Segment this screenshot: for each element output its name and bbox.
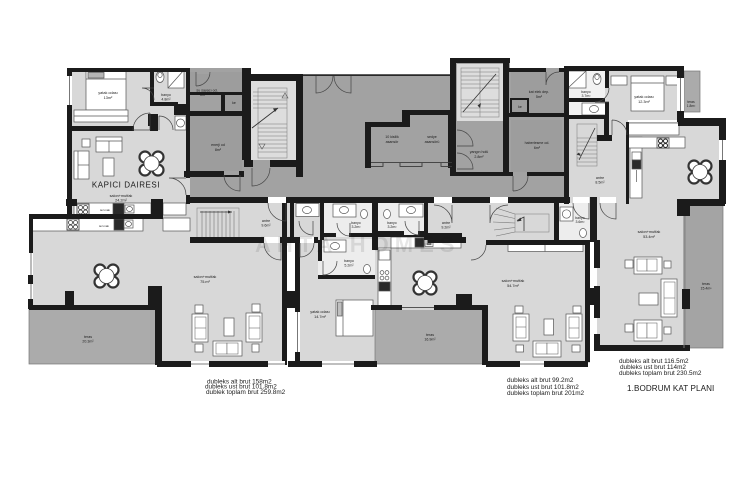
svg-text:kat elek dep.: kat elek dep.: [529, 90, 549, 94]
svg-text:tez.mak: tez.mak: [99, 224, 109, 228]
svg-text:antre: antre: [596, 176, 604, 180]
svg-text:12.3m²: 12.3m²: [638, 100, 651, 104]
svg-text:antre: antre: [442, 221, 450, 225]
svg-text:8.5m²: 8.5m²: [595, 181, 605, 185]
svg-text:KAPICI DAIRESI: KAPICI DAIRESI: [92, 181, 160, 190]
svg-text:asansör: asansör: [386, 140, 400, 144]
svg-text:dubleks toplam brut 230.5m2: dubleks toplam brut 230.5m2: [619, 370, 702, 377]
svg-text:dubleks toplam brut 201m2: dubleks toplam brut 201m2: [507, 390, 585, 397]
svg-text:1.BODRUM KAT PLANI: 1.BODRUM KAT PLANI: [627, 384, 714, 393]
svg-text:24.2m²: 24.2m²: [115, 199, 128, 203]
svg-text:sedye: sedye: [427, 135, 437, 139]
svg-text:AHTA HOMES: AHTA HOMES: [255, 232, 460, 257]
svg-text:ke: ke: [232, 101, 236, 105]
svg-text:3.6m²: 3.6m²: [576, 220, 586, 224]
svg-text:yatak odası: yatak odası: [310, 310, 329, 314]
svg-text:yangın holü: yangın holü: [470, 150, 489, 154]
svg-text:10 kisilik: 10 kisilik: [385, 135, 399, 139]
svg-text:teras: teras: [426, 333, 434, 337]
svg-text:9.2m²: 9.2m²: [441, 226, 451, 230]
svg-text:asansörü: asansörü: [425, 140, 440, 144]
svg-text:teras: teras: [702, 282, 710, 286]
svg-text:salon+mutfak: salon+mutfak: [194, 275, 217, 279]
svg-text:salon+mutfak: salon+mutfak: [638, 230, 661, 234]
svg-text:2.8m²: 2.8m²: [474, 155, 484, 159]
svg-text:5m²: 5m²: [536, 95, 543, 99]
svg-text:5.2m²: 5.2m²: [344, 264, 354, 268]
svg-text:3.2m²: 3.2m²: [388, 225, 398, 229]
svg-text:54.7m²: 54.7m²: [507, 284, 520, 288]
svg-text:6m²: 6m²: [534, 146, 541, 150]
svg-text:14.7m²: 14.7m²: [314, 315, 327, 319]
svg-text:53.4m²: 53.4m²: [643, 235, 656, 239]
svg-text:yatak odası: yatak odası: [98, 91, 117, 95]
svg-text:8m²: 8m²: [215, 148, 222, 152]
svg-text:3.7m²: 3.7m²: [582, 94, 592, 98]
svg-text:salon+mutfak: salon+mutfak: [110, 194, 133, 198]
svg-text:salon+mutfak: salon+mutfak: [502, 279, 525, 283]
svg-text:75.m²: 75.m²: [200, 280, 210, 284]
svg-text:1.8m²: 1.8m²: [687, 104, 696, 108]
svg-text:ke: ke: [518, 105, 522, 109]
svg-text:dublek toplam brut 259.8m2: dublek toplam brut 259.8m2: [206, 389, 286, 396]
svg-text:banyo: banyo: [161, 93, 171, 97]
svg-text:teras: teras: [84, 335, 92, 339]
svg-text:enerji od: enerji od: [211, 143, 225, 147]
svg-text:haberlesme od.: haberlesme od.: [525, 141, 550, 145]
svg-text:9.6m²: 9.6m²: [261, 224, 271, 228]
svg-text:antre: antre: [262, 219, 270, 223]
svg-text:20.3m²: 20.3m²: [82, 340, 94, 344]
svg-text:3.2m²: 3.2m²: [352, 225, 362, 229]
svg-text:4.8m²: 4.8m²: [161, 98, 171, 102]
svg-text:tez.mak: tez.mak: [100, 208, 110, 212]
svg-text:yatak odası: yatak odası: [634, 95, 653, 99]
svg-text:banyo: banyo: [344, 259, 354, 263]
svg-text:13m²: 13m²: [104, 96, 113, 100]
svg-text:su sayacı od.: su sayacı od.: [196, 89, 217, 93]
svg-text:15.4m²: 15.4m²: [701, 287, 713, 291]
svg-text:16.9m²: 16.9m²: [424, 338, 436, 342]
